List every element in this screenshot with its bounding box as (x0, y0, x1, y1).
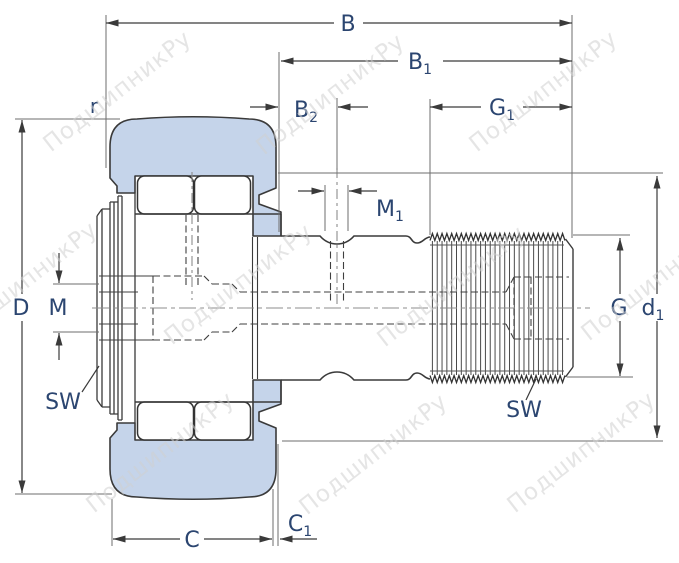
bearing-technical-drawing: B B1 B2 G1 M1 r D M SW C C1 G d1 SW Подш… (0, 0, 679, 563)
technical-drawing-page: B B1 B2 G1 M1 r D M SW C C1 G d1 SW Подш… (0, 0, 679, 563)
roller (195, 176, 251, 214)
watermark-text: ПодшипникРу (0, 217, 103, 349)
dim-label-M: M (49, 296, 68, 321)
watermark-text: ПодшипникРу (295, 389, 453, 521)
sw-right-leader (526, 379, 536, 400)
dim-label-SW-right: SW (506, 398, 542, 423)
watermark-text: ПодшипникРу (252, 29, 410, 161)
watermark-text: ПодшипникРу (465, 26, 623, 158)
dim-label-M1: M1 (376, 197, 404, 225)
dim-label-SW-left: SW (45, 390, 81, 415)
dim-label-C: C (184, 528, 199, 553)
roller (138, 176, 194, 214)
watermark-text: ПодшипникРу (577, 215, 679, 347)
dim-label-B: B (340, 12, 355, 37)
thread-crest-bottom (430, 376, 565, 383)
